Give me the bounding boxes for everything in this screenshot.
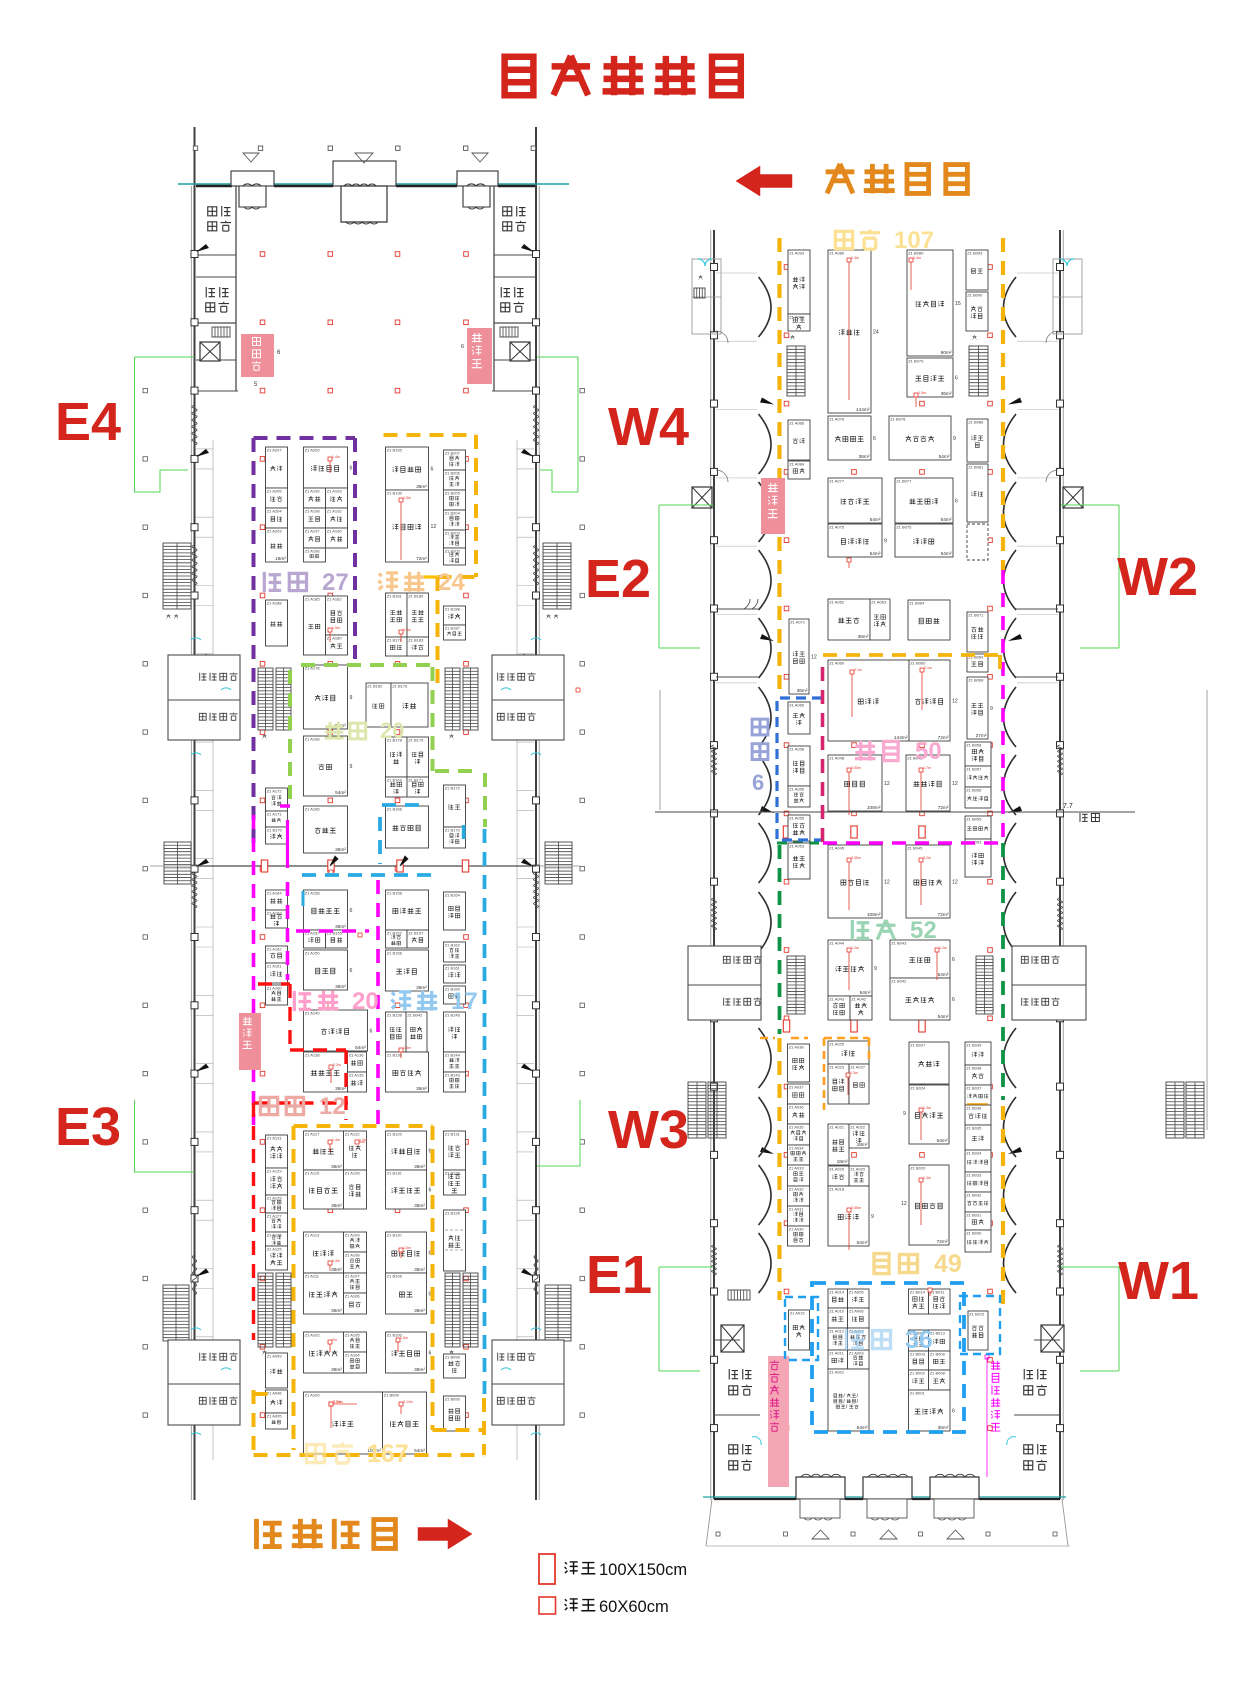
svg-text:12: 12 xyxy=(901,1201,907,1207)
svg-text:2.1m: 2.1m xyxy=(854,668,862,672)
svg-text:Z1 B138: Z1 B138 xyxy=(387,1013,403,1018)
svg-text:Z1 B182: Z1 B182 xyxy=(367,684,383,689)
svg-text:167: 167 xyxy=(367,1440,409,1468)
svg-text:Z1 B206: Z1 B206 xyxy=(445,471,461,476)
svg-text:Z1 A128: Z1 A128 xyxy=(267,1196,283,1201)
svg-text:Z1 B086: Z1 B086 xyxy=(968,420,984,425)
svg-text:1.4m: 1.4m xyxy=(332,455,340,459)
svg-text:1.3m: 1.3m xyxy=(850,1071,858,1075)
svg-text:Z1 B030: Z1 B030 xyxy=(966,1231,982,1236)
svg-text:1.5m: 1.5m xyxy=(400,1336,408,1340)
svg-text:Z1 A108: Z1 A108 xyxy=(345,1253,361,1258)
svg-text:12: 12 xyxy=(952,781,958,787)
svg-text:3.55m: 3.55m xyxy=(851,856,861,860)
svg-text:9: 9 xyxy=(990,706,993,712)
svg-text:Z1 B058: Z1 B058 xyxy=(966,743,982,748)
svg-text:Z1 B060: Z1 B060 xyxy=(910,661,926,666)
svg-text:27: 27 xyxy=(322,569,349,596)
svg-text:Z1 B056: Z1 B056 xyxy=(966,788,982,793)
svg-text:6: 6 xyxy=(873,436,876,442)
svg-text:Z1 A198: Z1 A198 xyxy=(305,509,321,514)
svg-text:72m²: 72m² xyxy=(937,1239,948,1245)
svg-text:15: 15 xyxy=(955,301,961,307)
svg-text:Z1 B024: Z1 B024 xyxy=(910,1086,926,1091)
svg-text:Z1 A038: Z1 A038 xyxy=(789,1045,805,1050)
svg-text:52: 52 xyxy=(910,917,937,944)
svg-text:Z1 B090: Z1 B090 xyxy=(967,293,983,298)
svg-text:1.4m: 1.4m xyxy=(332,1138,340,1142)
svg-text:9: 9 xyxy=(953,436,956,442)
svg-text:E3: E3 xyxy=(55,1097,121,1157)
svg-text:Z1 B203: Z1 B203 xyxy=(445,531,461,536)
svg-text:Z1 A127: Z1 A127 xyxy=(267,1214,283,1219)
svg-text:1.5m: 1.5m xyxy=(918,391,926,395)
svg-text:Z1 B128: Z1 B128 xyxy=(445,1211,461,1216)
svg-text:Z1 A032: Z1 A032 xyxy=(789,1187,805,1192)
svg-text:36m²: 36m² xyxy=(416,985,427,991)
svg-text:7.7: 7.7 xyxy=(1063,803,1073,810)
svg-text:Z1 A205: Z1 A205 xyxy=(267,489,283,494)
svg-text:Z1 A161: Z1 A161 xyxy=(267,964,283,969)
svg-text:Z1 A084: Z1 A084 xyxy=(789,462,805,467)
svg-text:54m²: 54m² xyxy=(870,517,881,523)
svg-text:Z1 A066: Z1 A066 xyxy=(789,703,805,708)
svg-text:Z1 A099: Z1 A099 xyxy=(267,1354,283,1359)
svg-text:3.55m: 3.55m xyxy=(851,766,861,770)
svg-text:Z1 B042: Z1 B042 xyxy=(891,979,907,984)
svg-text:12: 12 xyxy=(884,781,890,787)
svg-text:Z1 B195: Z1 B195 xyxy=(387,448,403,453)
svg-text:Z1 A086: Z1 A086 xyxy=(789,421,805,426)
svg-text:Z1 B110: Z1 B110 xyxy=(387,1233,403,1238)
svg-text:54m²: 54m² xyxy=(941,551,952,557)
svg-text:Z1 A136: Z1 A136 xyxy=(349,1053,365,1058)
svg-text:Z1 B175: Z1 B175 xyxy=(408,738,424,743)
svg-text:6: 6 xyxy=(952,957,955,963)
svg-text:Z1 B207: Z1 B207 xyxy=(445,451,461,456)
svg-text:36m²: 36m² xyxy=(414,1367,425,1373)
svg-text:Z1 B136: Z1 B136 xyxy=(387,1053,403,1058)
svg-text:Z1 A102: Z1 A102 xyxy=(305,1333,321,1338)
svg-text:Z1 A197: Z1 A197 xyxy=(305,529,321,534)
svg-text:Z1 B039: Z1 B039 xyxy=(966,1043,982,1048)
svg-text:Z1 B055: Z1 B055 xyxy=(966,817,982,822)
svg-text:6: 6 xyxy=(370,1029,373,1035)
svg-text:6: 6 xyxy=(277,350,281,356)
svg-text:Z1 A003: Z1 A003 xyxy=(849,1351,865,1356)
svg-text:Z1 A199: Z1 A199 xyxy=(305,489,321,494)
svg-text:1.4m: 1.4m xyxy=(851,256,859,260)
svg-text:Z1 A063: Z1 A063 xyxy=(871,600,887,605)
svg-text:Z1 B157: Z1 B157 xyxy=(408,931,424,936)
svg-text:36m²: 36m² xyxy=(331,1367,342,1373)
svg-text:9: 9 xyxy=(350,764,353,770)
svg-text:Z1 B170: Z1 B170 xyxy=(267,828,283,833)
svg-text:36m²: 36m² xyxy=(331,1164,342,1170)
svg-text:18m²: 18m² xyxy=(275,556,286,562)
svg-text:Z1 A075: Z1 A075 xyxy=(829,525,845,530)
svg-text:72m²: 72m² xyxy=(938,912,949,918)
svg-text:Z1 A096: Z1 A096 xyxy=(267,1391,283,1396)
svg-text:Z1 B015: Z1 B015 xyxy=(969,1312,985,1317)
svg-text:Z1 A045: Z1 A045 xyxy=(829,846,845,851)
svg-text:Z1 A203: Z1 A203 xyxy=(267,529,283,534)
svg-text:36m²: 36m² xyxy=(335,984,346,990)
svg-text:Z1 A062: Z1 A062 xyxy=(829,600,845,605)
svg-text:Z1 A031: Z1 A031 xyxy=(789,1207,805,1212)
svg-text:Z1 B152: Z1 B152 xyxy=(387,931,403,936)
svg-text:54m²: 54m² xyxy=(941,517,952,523)
svg-text:36m²: 36m² xyxy=(858,634,869,640)
svg-text:1.3m: 1.3m xyxy=(923,1176,931,1180)
svg-text:Z1 A140: Z1 A140 xyxy=(305,1011,321,1016)
svg-text:36m²: 36m² xyxy=(414,1267,425,1273)
svg-text:Z1 B129: Z1 B129 xyxy=(445,1171,461,1176)
svg-text:Z1 B166: Z1 B166 xyxy=(387,807,403,812)
svg-text:Z1 B032: Z1 B032 xyxy=(966,1193,982,1198)
svg-text:36m²: 36m² xyxy=(941,391,952,397)
svg-text:1.5m: 1.5m xyxy=(403,496,411,500)
svg-text:24: 24 xyxy=(873,330,879,336)
svg-text:1.4m: 1.4m xyxy=(359,1138,367,1142)
svg-text:Z1 A093: Z1 A093 xyxy=(789,251,805,256)
svg-text:Z1 A165: Z1 A165 xyxy=(305,807,321,812)
svg-text:12: 12 xyxy=(431,524,437,530)
svg-text:Z1 B014: Z1 B014 xyxy=(910,1290,926,1295)
svg-text:Z1 A090: Z1 A090 xyxy=(789,315,805,320)
svg-text:Z1 A042: Z1 A042 xyxy=(851,997,867,1002)
svg-text:50: 50 xyxy=(915,738,942,765)
svg-text:2.2m: 2.2m xyxy=(333,1063,341,1067)
svg-text:Z1 B071: Z1 B071 xyxy=(968,613,984,618)
svg-text:6: 6 xyxy=(431,467,434,473)
svg-text:Z1 B081: Z1 B081 xyxy=(968,465,984,470)
svg-text:Z1 A015: Z1 A015 xyxy=(790,1311,806,1316)
svg-text:49: 49 xyxy=(934,1250,962,1278)
svg-text:6: 6 xyxy=(952,997,955,1003)
svg-text:Z1 B034: Z1 B034 xyxy=(966,1151,982,1156)
svg-text:Z1 A044: Z1 A044 xyxy=(829,941,845,946)
svg-text:Z1 B187: Z1 B187 xyxy=(445,626,461,631)
svg-text:Z1 B205: Z1 B205 xyxy=(445,491,461,496)
svg-text:6: 6 xyxy=(952,1409,955,1415)
svg-text:Z1 A020: Z1 A020 xyxy=(829,1167,845,1172)
svg-text:Z1 A023: Z1 A023 xyxy=(829,1065,845,1070)
svg-text:W1: W1 xyxy=(1118,1251,1199,1311)
svg-text:Z1 A113: Z1 A113 xyxy=(305,1233,320,1238)
svg-text:3.14m: 3.14m xyxy=(403,1400,413,1404)
svg-text:54m²: 54m² xyxy=(355,1045,366,1051)
svg-text:Z1 B106: Z1 B106 xyxy=(387,1274,403,1279)
svg-text:9: 9 xyxy=(903,1111,906,1117)
svg-text:Z1 A106: Z1 A106 xyxy=(345,1294,361,1299)
svg-text:Z1 A204: Z1 A204 xyxy=(267,509,283,514)
svg-text:Z1 A043: Z1 A043 xyxy=(829,997,845,1002)
svg-text:Z1 B156: Z1 B156 xyxy=(387,951,403,956)
svg-text:Z1 A190: Z1 A190 xyxy=(327,529,343,534)
svg-text:36m²: 36m² xyxy=(416,1086,427,1092)
svg-text:107: 107 xyxy=(894,227,934,254)
svg-text:72m²: 72m² xyxy=(416,556,427,562)
svg-text:Z1 B172: Z1 B172 xyxy=(445,786,461,791)
svg-text:36: 36 xyxy=(905,1326,933,1354)
svg-text:Z1 A111: Z1 A111 xyxy=(305,1274,320,1279)
svg-text:9: 9 xyxy=(350,695,353,701)
svg-text:Z1 A104: Z1 A104 xyxy=(345,1353,361,1358)
svg-text:Z1 B093: Z1 B093 xyxy=(967,251,983,256)
svg-text:Z1 A036: Z1 A036 xyxy=(789,1105,805,1110)
svg-text:Z1 B120: Z1 B120 xyxy=(387,1132,403,1137)
svg-text:Z1 B161: Z1 B161 xyxy=(445,966,461,971)
svg-text:Z1 A196: Z1 A196 xyxy=(305,549,321,554)
svg-text:Z1 A115: Z1 A115 xyxy=(305,1171,320,1176)
svg-text:Z1 B158: Z1 B158 xyxy=(387,891,403,896)
svg-text:1.4m: 1.4m xyxy=(913,256,921,260)
svg-text:36m²: 36m² xyxy=(414,1164,425,1170)
svg-text:Z1 A171: Z1 A171 xyxy=(267,812,283,817)
svg-text:Z1 B078: Z1 B078 xyxy=(890,417,906,422)
svg-text:36m²: 36m² xyxy=(331,1267,342,1273)
svg-text:Z1 A060: Z1 A060 xyxy=(829,661,845,666)
svg-text:0.4m: 0.4m xyxy=(332,1259,340,1263)
svg-text:Z1 A010: Z1 A010 xyxy=(829,1309,845,1314)
svg-text:24: 24 xyxy=(438,569,465,596)
svg-text:Z1 A117: Z1 A117 xyxy=(305,1132,320,1137)
svg-text:9: 9 xyxy=(874,966,877,972)
svg-text:36m²: 36m² xyxy=(331,1308,342,1314)
svg-text:3.5m: 3.5m xyxy=(403,628,411,632)
svg-text:Z1 B164: Z1 B164 xyxy=(445,893,461,898)
svg-text:Z1 A025: Z1 A025 xyxy=(829,1042,845,1047)
svg-text:100X150cm: 100X150cm xyxy=(599,1561,687,1579)
svg-text:54m²: 54m² xyxy=(938,1014,949,1020)
svg-text:Z1 B143: Z1 B143 xyxy=(445,1073,461,1078)
svg-text:27m²: 27m² xyxy=(976,733,987,739)
svg-text:Z1 B031: Z1 B031 xyxy=(966,1213,982,1218)
svg-text:Z1 A018: Z1 A018 xyxy=(829,1187,845,1192)
svg-text:36m²: 36m² xyxy=(797,688,808,694)
svg-text:Z1 A192: Z1 A192 xyxy=(327,509,343,514)
svg-text:Z1 A150: Z1 A150 xyxy=(305,951,321,956)
svg-text:3.2m: 3.2m xyxy=(923,856,931,860)
svg-text:Z1 A107: Z1 A107 xyxy=(345,1274,361,1279)
svg-text:Z1 A033: Z1 A033 xyxy=(789,1166,805,1171)
svg-text:Z1 A128: Z1 A128 xyxy=(345,1171,361,1176)
svg-text:6: 6 xyxy=(429,1188,432,1194)
svg-text:5: 5 xyxy=(254,382,258,388)
svg-text:Z1 B176: Z1 B176 xyxy=(392,684,408,689)
svg-text:6: 6 xyxy=(461,344,464,350)
svg-text:108m²: 108m² xyxy=(867,805,881,811)
svg-text:36m²: 36m² xyxy=(859,454,870,460)
svg-text:Z1 B169: Z1 B169 xyxy=(387,778,403,783)
svg-text:Z1 A138: Z1 A138 xyxy=(305,1053,321,1058)
svg-text:Z1 A095: Z1 A095 xyxy=(267,1414,283,1419)
svg-text:Z1 B077: Z1 B077 xyxy=(896,479,912,484)
svg-text:60X60cm: 60X60cm xyxy=(599,1598,669,1616)
svg-text:Z1 A158: Z1 A158 xyxy=(305,891,321,896)
svg-text:Z1 A080: Z1 A080 xyxy=(829,251,845,256)
svg-text:Z1 A207: Z1 A207 xyxy=(267,448,283,453)
svg-text:Z1 B116: Z1 B116 xyxy=(387,1171,403,1176)
svg-text:6: 6 xyxy=(350,908,353,914)
svg-text:Z1 B035: Z1 B035 xyxy=(966,1126,982,1131)
svg-text:Z1 A164: Z1 A164 xyxy=(267,891,283,896)
svg-text:12: 12 xyxy=(952,880,958,886)
svg-text:90m²: 90m² xyxy=(941,350,952,356)
svg-text:Z1 B131: Z1 B131 xyxy=(445,1132,461,1137)
svg-text:Z1 A055: Z1 A055 xyxy=(789,816,805,821)
svg-text:Z1 B188: Z1 B188 xyxy=(445,607,461,612)
svg-text:Z1 B170: Z1 B170 xyxy=(445,828,461,833)
svg-text:2.1m: 2.1m xyxy=(924,666,932,670)
svg-text:Z1 B079: Z1 B079 xyxy=(908,359,924,364)
svg-text:108m²: 108m² xyxy=(867,912,881,918)
svg-text:W2: W2 xyxy=(1117,547,1198,607)
svg-text:6: 6 xyxy=(350,466,353,472)
svg-text:Z1 B001: Z1 B001 xyxy=(910,1391,926,1396)
svg-text:54m²: 54m² xyxy=(335,790,346,796)
svg-text:Z1 A131: Z1 A131 xyxy=(267,1136,283,1141)
svg-text:Z1 A001: Z1 A001 xyxy=(829,1370,845,1375)
svg-text:3.55m: 3.55m xyxy=(851,1206,861,1210)
svg-text:36m²: 36m² xyxy=(335,924,346,930)
svg-text:Z1 B179: Z1 B179 xyxy=(387,638,403,643)
svg-text:1.2m: 1.2m xyxy=(939,946,947,950)
svg-text:Z1 A160: Z1 A160 xyxy=(267,986,283,991)
svg-text:3.5m: 3.5m xyxy=(333,1400,341,1404)
svg-text:1.3m: 1.3m xyxy=(923,1106,931,1110)
svg-text:72m²: 72m² xyxy=(938,805,949,811)
svg-text:Z1 B020: Z1 B020 xyxy=(910,1166,926,1171)
svg-text:Z1 A172: Z1 A172 xyxy=(267,789,283,794)
svg-text:36m²: 36m² xyxy=(331,1203,342,1209)
svg-text:Z1 A188: Z1 A188 xyxy=(267,601,283,606)
svg-text:Z1 B075: Z1 B075 xyxy=(896,525,912,530)
svg-text:Z1 B038: Z1 B038 xyxy=(966,1066,982,1071)
svg-text:36m²: 36m² xyxy=(414,1308,425,1314)
svg-text:36m²: 36m² xyxy=(416,484,427,490)
svg-text:Z1 A027: Z1 A027 xyxy=(850,1065,866,1070)
svg-text:Z1 A048: Z1 A048 xyxy=(829,756,845,761)
svg-text:W3: W3 xyxy=(608,1100,689,1160)
svg-text:Z1 B185: Z1 B185 xyxy=(408,594,424,599)
svg-text:Z1 A021: Z1 A021 xyxy=(829,1125,845,1130)
svg-text:Z1 B096: Z1 B096 xyxy=(445,1355,461,1360)
svg-text:Z1 B042: Z1 B042 xyxy=(407,1013,423,1018)
svg-text:Z1 A014: Z1 A014 xyxy=(829,1290,845,1295)
svg-text:Z1 A012: Z1 A012 xyxy=(829,1329,845,1334)
svg-text:20: 20 xyxy=(352,988,379,1015)
svg-text:Z1 B027: Z1 B027 xyxy=(910,1043,926,1048)
svg-text:12: 12 xyxy=(319,1093,346,1120)
svg-text:Z1 A011: Z1 A011 xyxy=(829,1351,844,1356)
svg-text:Z1 B037: Z1 B037 xyxy=(966,1086,982,1091)
svg-text:Z1 B183: Z1 B183 xyxy=(408,638,424,643)
svg-text:36m²: 36m² xyxy=(335,847,346,853)
svg-text:Z1 A193: Z1 A193 xyxy=(327,489,343,494)
svg-text:18m²: 18m² xyxy=(837,1159,848,1165)
svg-text:1.5m: 1.5m xyxy=(332,626,340,630)
svg-text:Z1 B095: Z1 B095 xyxy=(445,1397,461,1402)
svg-text:54m²: 54m² xyxy=(938,972,949,978)
svg-text:54m²: 54m² xyxy=(939,454,950,460)
svg-text:E2: E2 xyxy=(585,549,651,609)
svg-text:54m²: 54m² xyxy=(860,990,871,996)
svg-text:Z1 A006: Z1 A006 xyxy=(849,1309,865,1314)
svg-text:Z1 B181: Z1 B181 xyxy=(387,594,403,599)
svg-text:Z1 A122: Z1 A122 xyxy=(345,1132,361,1137)
svg-text:Z1 A056: Z1 A056 xyxy=(789,787,805,792)
svg-text:Z1 B064: Z1 B064 xyxy=(909,601,925,606)
svg-text:9: 9 xyxy=(871,1214,874,1220)
svg-text:E1: E1 xyxy=(586,1245,652,1305)
svg-text:E4: E4 xyxy=(55,392,121,452)
svg-text:Z1 B033: Z1 B033 xyxy=(966,1173,982,1178)
svg-text:Z1 A035: Z1 A035 xyxy=(789,1125,805,1130)
svg-text:Z1 A180: Z1 A180 xyxy=(327,636,343,641)
svg-text:20: 20 xyxy=(380,718,404,743)
svg-text:Z1 A029: Z1 A029 xyxy=(850,1167,866,1172)
svg-text:Z1 B002: Z1 B002 xyxy=(910,1371,926,1376)
svg-text:Z1 A168: Z1 A168 xyxy=(305,737,321,742)
svg-text:9: 9 xyxy=(884,539,887,545)
svg-text:54m²: 54m² xyxy=(857,1240,868,1246)
svg-text:Z1 A162: Z1 A162 xyxy=(267,947,283,952)
svg-text:2m: 2m xyxy=(332,1338,337,1342)
svg-text:Z1 A105: Z1 A105 xyxy=(345,1333,361,1338)
svg-text:Z1 B057: Z1 B057 xyxy=(966,767,982,772)
svg-text:18m²: 18m² xyxy=(857,1142,868,1148)
svg-text:12: 12 xyxy=(811,655,817,661)
svg-text:Z1 A100: Z1 A100 xyxy=(305,1393,321,1398)
svg-text:W4: W4 xyxy=(608,397,689,457)
svg-text:6: 6 xyxy=(955,499,958,505)
svg-text:Z1 A077: Z1 A077 xyxy=(829,479,845,484)
svg-text:Z1 B043: Z1 B043 xyxy=(891,941,907,946)
svg-text:Z1 A078: Z1 A078 xyxy=(829,417,845,422)
svg-text:Z1 A182: Z1 A182 xyxy=(327,597,343,602)
svg-text:Z1 A185: Z1 A185 xyxy=(305,597,321,602)
svg-text:Z1 A037: Z1 A037 xyxy=(789,1085,805,1090)
svg-text:Z1 A022: Z1 A022 xyxy=(850,1125,866,1130)
svg-text:6: 6 xyxy=(350,968,353,974)
svg-text:6: 6 xyxy=(429,1351,432,1357)
svg-text:Z1 B190: Z1 B190 xyxy=(387,491,403,496)
svg-text:Z1 A200: Z1 A200 xyxy=(305,448,321,453)
svg-text:1.2m: 1.2m xyxy=(851,946,859,950)
svg-text:Z1 A034: Z1 A034 xyxy=(789,1146,805,1151)
svg-text:Z1 B099: Z1 B099 xyxy=(384,1393,400,1398)
svg-text:Z1 A135: Z1 A135 xyxy=(349,1073,365,1078)
svg-text:1.5m: 1.5m xyxy=(403,1246,411,1250)
svg-text:12: 12 xyxy=(952,699,958,705)
svg-text:Z1 A030: Z1 A030 xyxy=(789,1227,805,1232)
svg-text:Z1 B162: Z1 B162 xyxy=(445,943,461,948)
svg-text:Z1 A058: Z1 A058 xyxy=(789,747,805,752)
svg-text:Z1 A053: Z1 A053 xyxy=(789,844,805,849)
svg-text:Z1 B008: Z1 B008 xyxy=(930,1371,946,1376)
svg-text:54m²: 54m² xyxy=(937,1138,948,1144)
svg-text:Z1 B204: Z1 B204 xyxy=(445,511,461,516)
svg-text:6: 6 xyxy=(752,770,764,795)
svg-text:Z1 A071: Z1 A071 xyxy=(790,620,806,625)
svg-text:Z1 B045: Z1 B045 xyxy=(907,846,923,851)
svg-text:1.7m: 1.7m xyxy=(923,766,931,770)
svg-text:36m²: 36m² xyxy=(414,1203,425,1209)
svg-text:1.5m: 1.5m xyxy=(403,1046,411,1050)
svg-text:Z1 A109: Z1 A109 xyxy=(345,1233,361,1238)
